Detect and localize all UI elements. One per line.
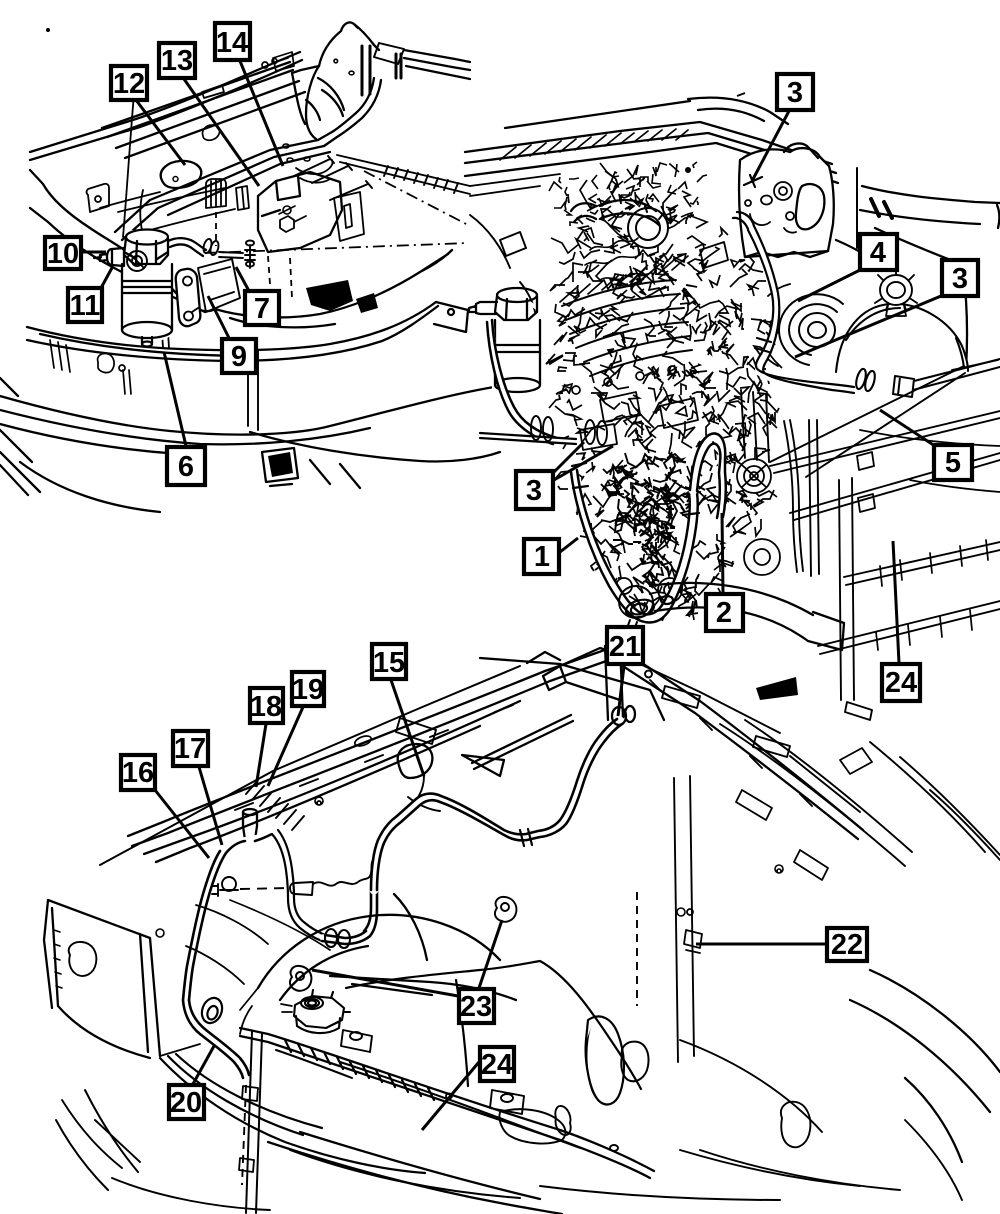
svg-text:21: 21 (609, 631, 641, 663)
svg-text:3: 3 (952, 263, 968, 295)
svg-text:24: 24 (481, 1049, 513, 1081)
svg-text:15: 15 (373, 647, 405, 679)
svg-text:20: 20 (170, 1087, 202, 1119)
svg-text:16: 16 (122, 757, 154, 789)
svg-text:5: 5 (945, 447, 961, 479)
svg-text:22: 22 (831, 929, 863, 961)
svg-text:17: 17 (174, 733, 206, 765)
svg-text:12: 12 (113, 68, 145, 100)
svg-text:10: 10 (47, 238, 79, 270)
svg-text:1: 1 (534, 541, 550, 573)
svg-text:9: 9 (231, 341, 247, 373)
svg-text:19: 19 (292, 674, 324, 706)
svg-text:3: 3 (526, 475, 542, 507)
svg-text:13: 13 (161, 45, 193, 77)
svg-text:2: 2 (716, 597, 732, 629)
svg-text:24: 24 (885, 667, 917, 699)
svg-text:18: 18 (250, 691, 282, 723)
svg-text:7: 7 (254, 293, 270, 325)
svg-text:14: 14 (216, 27, 248, 59)
svg-text:11: 11 (70, 290, 101, 322)
svg-text:23: 23 (460, 991, 492, 1023)
svg-text:4: 4 (870, 237, 886, 269)
svg-text:6: 6 (178, 451, 194, 483)
svg-text:3: 3 (787, 77, 803, 109)
